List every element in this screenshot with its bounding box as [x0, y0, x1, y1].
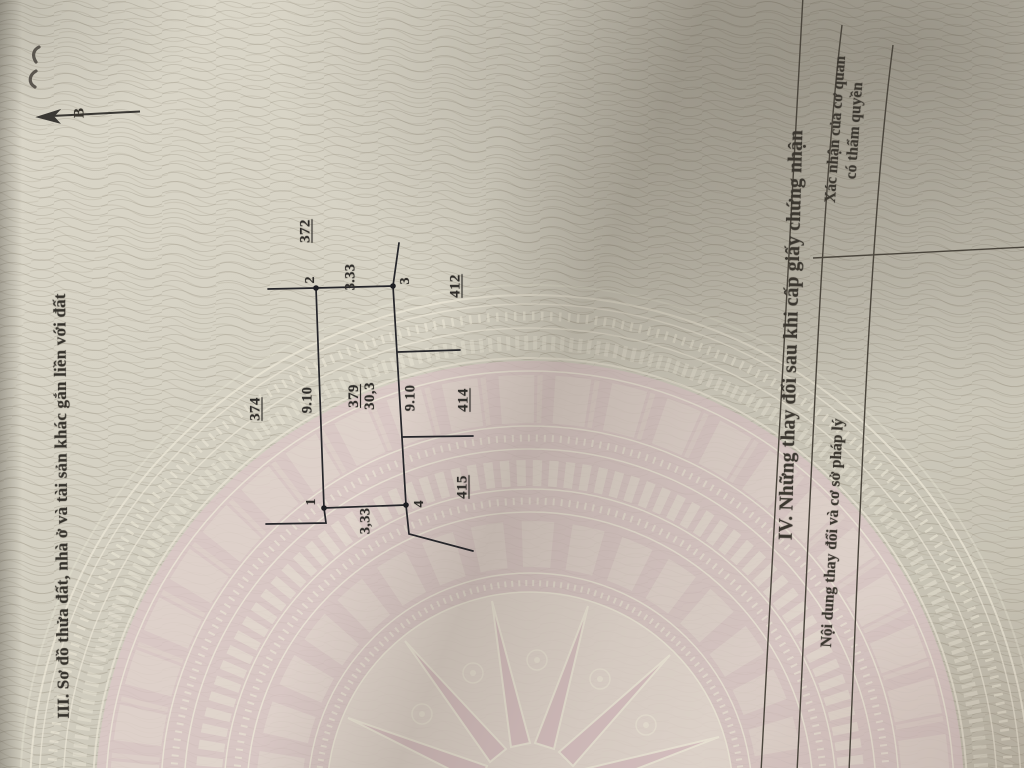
adjacent-parcel-372-label: 372 — [298, 219, 315, 243]
north-label: B — [72, 108, 89, 118]
guilloche-texture — [0, 0, 1024, 768]
dimension-bottom-label: 3,33 — [358, 508, 375, 535]
point-3-label: 3 — [398, 278, 414, 285]
section-iv-title: IV. Những thay đổi sau khi cấp giấy chứn… — [776, 130, 809, 541]
photo-shadow-overlay — [0, 0, 1024, 768]
point-4-label: 4 — [412, 501, 428, 508]
pen-marks — [30, 47, 39, 87]
parcel-area-label: 30,3 — [362, 382, 378, 410]
dimension-right-label: 9.10 — [403, 385, 420, 412]
point-1-label: 1 — [304, 499, 320, 506]
adjacent-parcel-414-label: 414 — [456, 388, 473, 412]
column2-header: Xác nhận của cơ quan có thẩm quyền — [821, 55, 869, 205]
column1-header: Nội dung thay đổi và cơ sở pháp lý — [818, 418, 848, 648]
parcel-number-label: 379 — [346, 382, 362, 410]
adjacent-parcel-412-label: 412 — [448, 274, 465, 298]
plot-diagram-lines — [0, 0, 1024, 768]
adjacent-parcel-374-label: 374 — [248, 397, 265, 421]
parcel-label: 379 30,3 — [346, 382, 378, 410]
dimension-left-label: 9.10 — [300, 387, 317, 414]
adjacent-parcel-415-label: 415 — [455, 475, 472, 499]
photo-of-land-certificate-page: III. Sơ đồ thửa đất, nhà ở và tài sản kh… — [0, 0, 1024, 768]
north-arrow-icon — [39, 111, 140, 122]
point-2-label: 2 — [303, 277, 319, 284]
section-iii-title: III. Sơ đồ thửa đất, nhà ở và tài sản kh… — [50, 293, 74, 718]
table-grid-lines — [0, 0, 1024, 768]
bronze-drum-watermark — [0, 0, 1024, 768]
dimension-top-label: 3.33 — [343, 264, 360, 291]
photo-vignette — [0, 0, 1024, 768]
